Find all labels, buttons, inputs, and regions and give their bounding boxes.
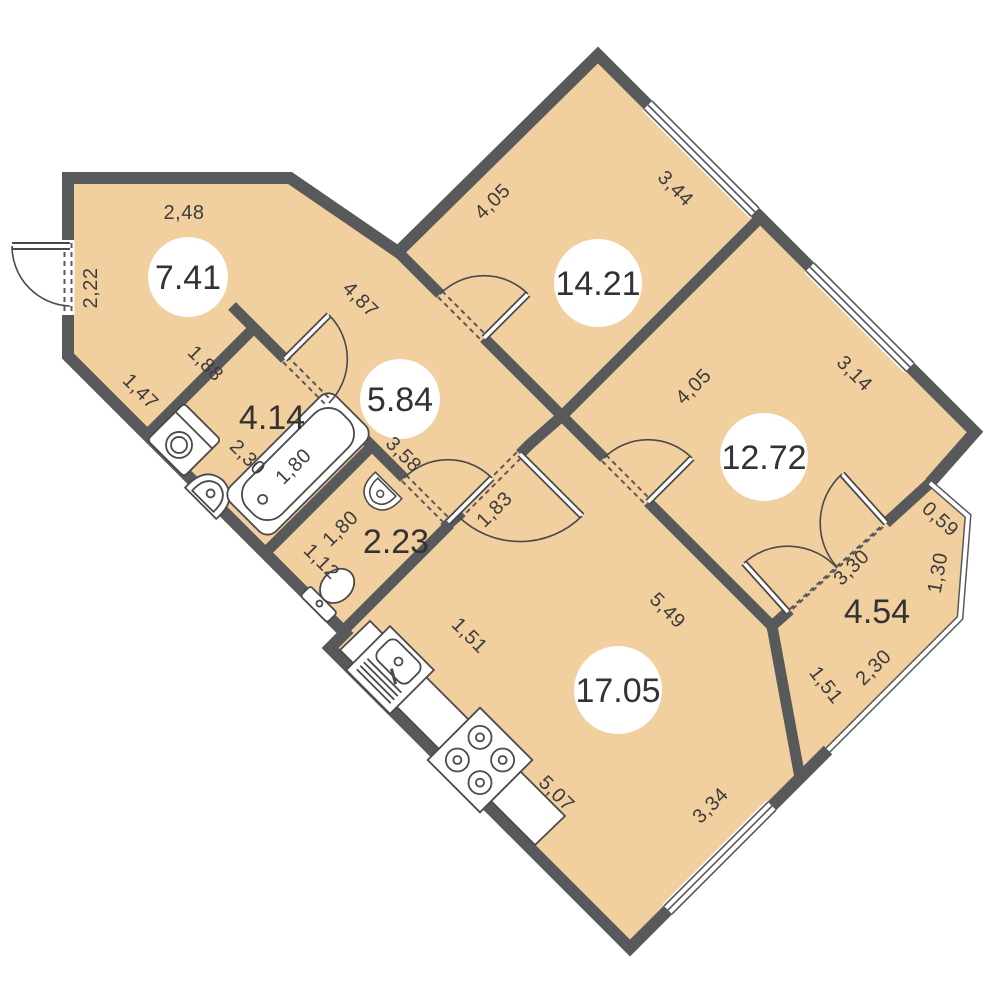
room-label-1421: 14.21 — [555, 265, 640, 303]
entrance-door-arc — [12, 246, 70, 306]
room-label-741: 7.41 — [155, 259, 221, 297]
room-label-1705: 17.05 — [575, 672, 660, 710]
floor-plan-page: 7.41 14.21 12.72 5.84 4.14 2.23 17.05 4.… — [0, 0, 1000, 1000]
room-label-223: 2.23 — [363, 523, 429, 561]
room-label-454: 4.54 — [844, 593, 910, 631]
dim-2-48: 2,48 — [164, 202, 205, 224]
room-label-414: 4.14 — [239, 399, 305, 437]
room-label-584: 5.84 — [367, 381, 433, 419]
room-label-1272: 12.72 — [721, 439, 806, 477]
floor-plan: 7.41 14.21 12.72 5.84 4.14 2.23 17.05 4.… — [0, 0, 1000, 1000]
entrance-door — [12, 240, 75, 315]
dim-2-22: 2,22 — [80, 268, 102, 309]
